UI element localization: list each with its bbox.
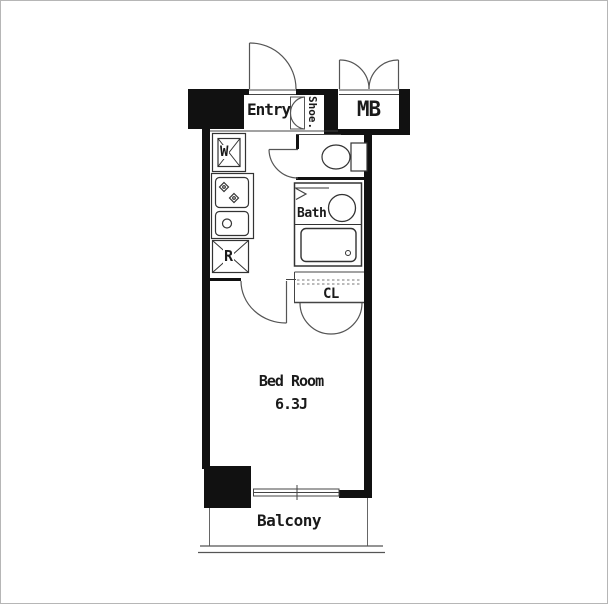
washer-label: W	[219, 145, 229, 159]
toilet-bowl	[322, 145, 350, 169]
wall-mb-right	[399, 89, 410, 135]
bath-sink	[329, 195, 356, 222]
toilet-tank	[351, 143, 367, 171]
wall-right	[364, 135, 372, 498]
wall-toilet-bottom	[296, 177, 364, 180]
bedroom-door	[241, 281, 287, 323]
shoe-cabinet-doors	[290, 97, 304, 129]
shoe-closet-label: Shoe.	[307, 96, 318, 129]
mb-double-doors	[340, 60, 399, 89]
closet-double-doors	[300, 303, 362, 334]
balcony-label: Balcony	[210, 513, 368, 529]
meter-box-label: MB	[338, 99, 399, 120]
wall-segment	[244, 89, 249, 95]
toilet-fixture	[322, 143, 367, 171]
burner-dot	[233, 197, 236, 200]
entry-label: Entry	[247, 102, 290, 118]
wall-bottom-right	[339, 490, 372, 498]
entry-door	[250, 43, 297, 89]
wall-left	[202, 129, 210, 469]
wall-bedroom-top-left	[210, 278, 241, 281]
wall-shoe-mb-divider	[324, 89, 338, 135]
bath-door-mark	[296, 189, 306, 200]
refrigerator-label: R	[223, 249, 234, 264]
wall-pillar-bottom-left	[204, 466, 251, 508]
bathtub	[301, 229, 356, 262]
floor-plan: Entry Shoe. MB W R Bath CL Bed Room 6.3J…	[0, 0, 608, 604]
bedroom-size-label: 6.3J	[210, 397, 372, 412]
kitchen-counter	[212, 174, 254, 239]
bedroom-label: Bed Room	[210, 374, 372, 389]
burner-dot	[223, 186, 226, 189]
wall-mb-bottom	[331, 129, 410, 135]
wall-pillar-top-left	[188, 89, 244, 129]
sink-drain	[223, 219, 232, 228]
wall-toilet-left	[296, 134, 299, 149]
toilet-door	[269, 150, 298, 179]
bath-label: Bath	[297, 207, 326, 220]
closet-label: CL	[322, 287, 340, 301]
